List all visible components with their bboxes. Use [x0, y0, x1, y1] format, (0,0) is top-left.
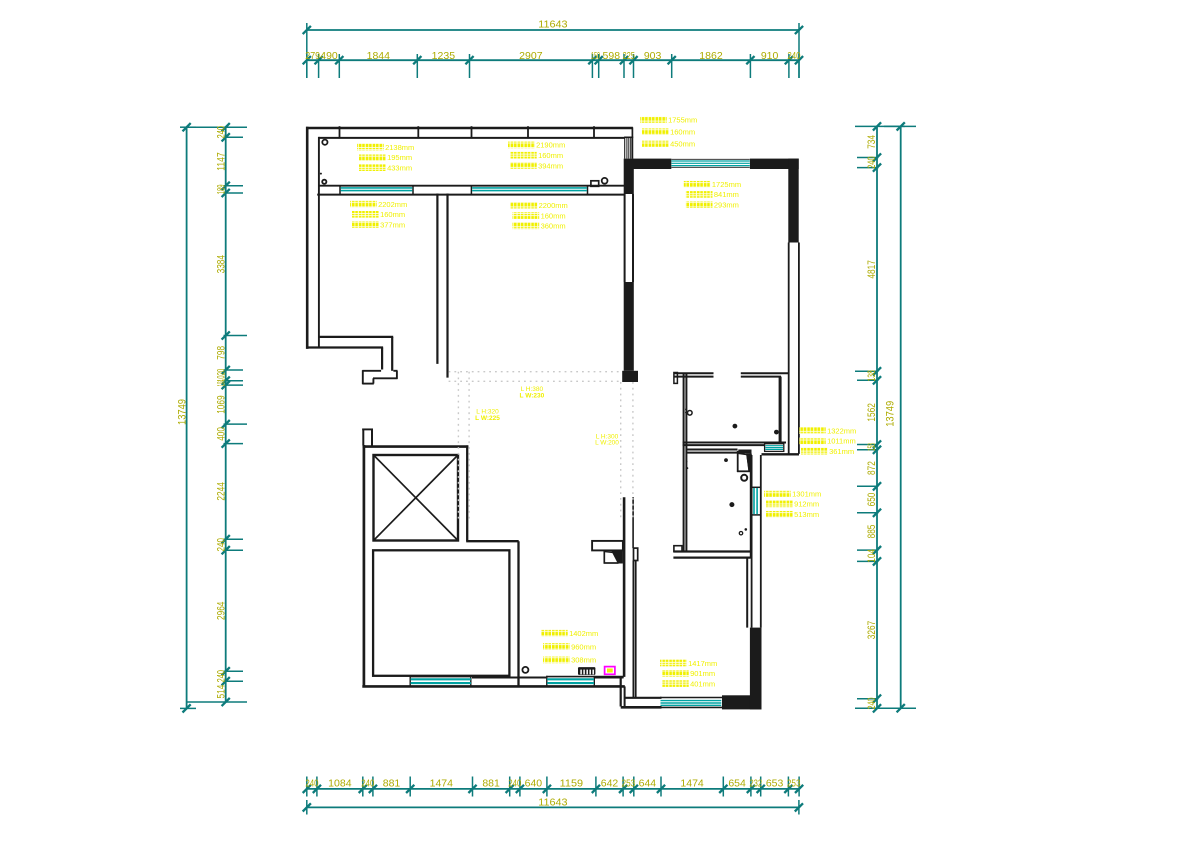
svg-text:1725mm: 1725mm — [712, 180, 741, 189]
svg-text:1011mm: 1011mm — [827, 437, 856, 446]
svg-text:1069: 1069 — [215, 395, 227, 413]
svg-text:598: 598 — [603, 51, 621, 62]
svg-text:841mm: 841mm — [714, 190, 739, 199]
svg-text:2200mm: 2200mm — [539, 201, 568, 210]
svg-text:3384: 3384 — [215, 255, 227, 273]
svg-text:104: 104 — [215, 379, 227, 386]
svg-text:2190mm: 2190mm — [536, 141, 565, 150]
svg-text:450mm: 450mm — [670, 139, 695, 148]
svg-text:360mm: 360mm — [541, 222, 566, 231]
svg-text:910: 910 — [761, 51, 779, 62]
svg-text:160mm: 160mm — [541, 211, 566, 220]
svg-text:195mm: 195mm — [387, 153, 412, 162]
svg-text:433mm: 433mm — [387, 164, 412, 173]
svg-text:1862: 1862 — [699, 51, 723, 62]
svg-text:644: 644 — [639, 778, 657, 789]
svg-text:650: 650 — [866, 493, 878, 507]
svg-text:232: 232 — [749, 778, 762, 789]
svg-text:2907: 2907 — [519, 51, 543, 62]
svg-text:2202mm: 2202mm — [378, 200, 407, 209]
svg-text:514: 514 — [215, 685, 227, 699]
svg-text:885: 885 — [866, 525, 878, 539]
svg-text:3267: 3267 — [866, 621, 878, 639]
svg-text:881: 881 — [482, 778, 500, 789]
svg-text:253: 253 — [787, 778, 801, 789]
svg-text:1474: 1474 — [680, 778, 704, 789]
svg-text:189: 189 — [215, 185, 227, 195]
svg-text:640: 640 — [525, 778, 543, 789]
svg-text:653: 653 — [766, 778, 784, 789]
svg-text:279: 279 — [305, 51, 320, 62]
svg-text:513mm: 513mm — [794, 510, 819, 519]
svg-text:361mm: 361mm — [829, 447, 854, 456]
svg-text:400: 400 — [215, 427, 227, 441]
svg-text:104: 104 — [866, 549, 878, 563]
svg-text:1562: 1562 — [866, 403, 878, 421]
svg-text:2244: 2244 — [215, 482, 227, 500]
svg-text:901mm: 901mm — [690, 669, 715, 678]
svg-text:11643: 11643 — [538, 797, 568, 808]
svg-text:1402mm: 1402mm — [569, 629, 598, 638]
svg-text:377mm: 377mm — [380, 220, 405, 229]
svg-text:308mm: 308mm — [571, 656, 596, 665]
svg-text:13749: 13749 — [177, 399, 189, 425]
svg-text:240: 240 — [866, 156, 878, 169]
svg-text:872: 872 — [866, 461, 878, 475]
svg-text:1755mm: 1755mm — [668, 116, 697, 125]
svg-text:1322mm: 1322mm — [827, 426, 856, 435]
svg-text:881: 881 — [383, 778, 401, 789]
svg-text:138: 138 — [866, 370, 878, 382]
svg-text:2138mm: 2138mm — [385, 143, 414, 152]
svg-text:160mm: 160mm — [538, 151, 563, 160]
svg-text:11643: 11643 — [538, 20, 568, 31]
svg-text:798: 798 — [215, 346, 227, 360]
svg-text:L W:225: L W:225 — [475, 415, 500, 422]
svg-text:240: 240 — [361, 778, 374, 789]
svg-text:240: 240 — [215, 126, 227, 139]
svg-text:1474: 1474 — [430, 778, 454, 789]
svg-text:642: 642 — [601, 778, 619, 789]
svg-text:960mm: 960mm — [571, 642, 596, 651]
svg-text:240: 240 — [305, 778, 318, 789]
svg-text:1844: 1844 — [367, 51, 391, 62]
svg-text:240: 240 — [508, 778, 521, 789]
svg-text:654: 654 — [728, 778, 746, 789]
svg-text:903: 903 — [644, 51, 662, 62]
svg-text:2964: 2964 — [215, 602, 227, 620]
svg-text:160mm: 160mm — [380, 210, 405, 219]
svg-text:293mm: 293mm — [714, 201, 739, 210]
svg-text:1301mm: 1301mm — [792, 489, 821, 498]
svg-text:158: 158 — [866, 443, 878, 451]
svg-text:1159: 1159 — [560, 778, 584, 789]
svg-text:L W:200: L W:200 — [595, 440, 619, 447]
svg-text:240: 240 — [866, 697, 878, 709]
svg-text:912mm: 912mm — [794, 500, 819, 509]
svg-text:1417mm: 1417mm — [688, 659, 717, 668]
svg-text:160mm: 160mm — [670, 128, 695, 137]
svg-text:13749: 13749 — [885, 401, 897, 427]
svg-text:394mm: 394mm — [538, 161, 563, 170]
svg-text:1147: 1147 — [215, 152, 227, 170]
svg-text:4817: 4817 — [866, 260, 878, 278]
svg-text:490: 490 — [320, 51, 338, 62]
svg-text:253: 253 — [622, 778, 636, 789]
svg-text:734: 734 — [866, 135, 878, 149]
svg-text:150: 150 — [591, 51, 600, 62]
svg-text:240: 240 — [215, 538, 227, 552]
svg-text:1235: 1235 — [432, 51, 456, 62]
svg-text:1084: 1084 — [328, 778, 352, 789]
svg-text:225: 225 — [622, 51, 635, 62]
svg-text:240: 240 — [215, 670, 227, 682]
svg-text:401mm: 401mm — [690, 679, 715, 688]
svg-text:240: 240 — [787, 51, 800, 62]
svg-text:L W:230: L W:230 — [520, 392, 545, 399]
